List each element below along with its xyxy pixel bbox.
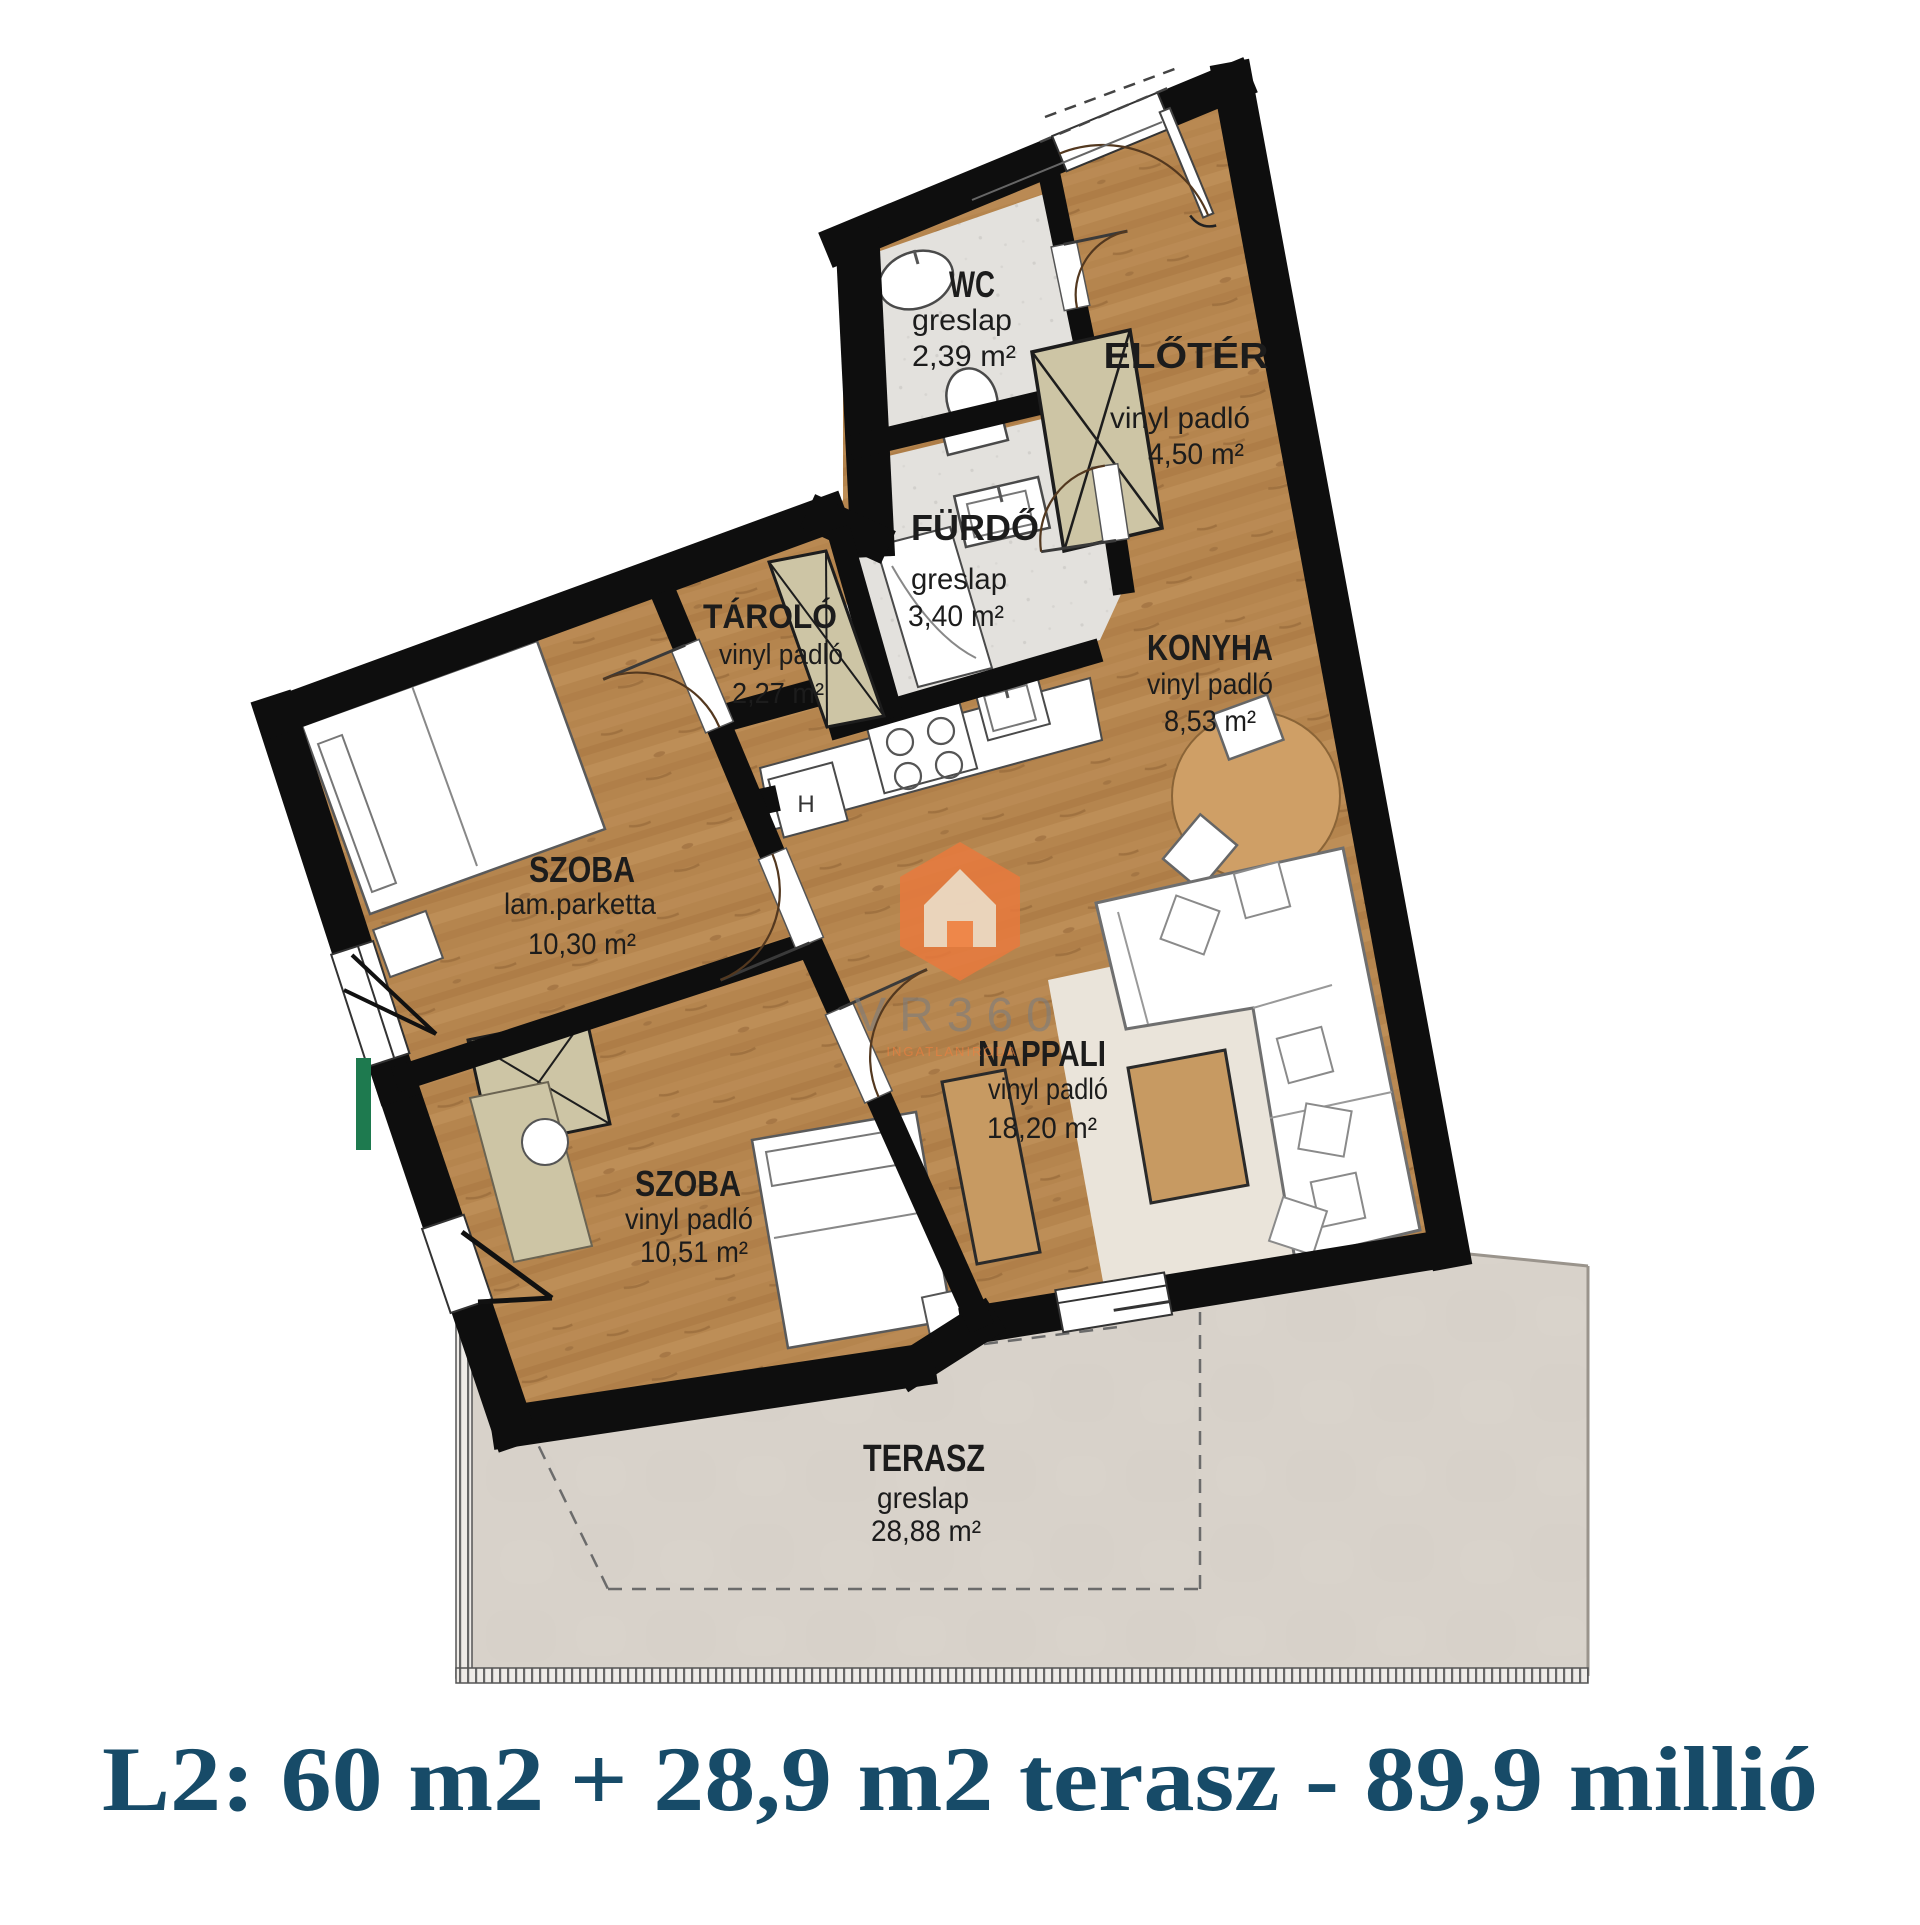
svg-text:VR360: VR360 [854,989,1066,1042]
svg-text:4,50 m²: 4,50 m² [1148,438,1244,471]
svg-text:28,88 m²: 28,88 m² [871,1515,981,1548]
svg-text:KONYHA: KONYHA [1147,627,1273,668]
svg-text:TERASZ: TERASZ [863,1438,985,1480]
svg-text:lam.parketta: lam.parketta [504,888,656,921]
svg-text:vinyl padló: vinyl padló [719,639,843,671]
svg-text:H: H [797,791,814,818]
svg-text:3,40 m²: 3,40 m² [908,600,1004,633]
svg-text:SZOBA: SZOBA [635,1163,741,1204]
svg-text:vinyl padló: vinyl padló [625,1203,753,1236]
svg-text:TÁROLÓ: TÁROLÓ [703,598,837,636]
svg-text:10,30 m²: 10,30 m² [528,928,636,961]
svg-text:L2: 60 m2 + 28,9 m2 terasz - 8: L2: 60 m2 + 28,9 m2 terasz - 89,9 millió [102,1728,1818,1830]
svg-text:vinyl padló: vinyl padló [988,1073,1108,1106]
svg-text:greslap: greslap [911,563,1007,596]
svg-text:2,27 m²: 2,27 m² [732,678,824,710]
svg-text:18,20 m²: 18,20 m² [987,1112,1097,1145]
svg-text:greslap: greslap [912,304,1012,337]
svg-text:WC: WC [949,264,995,305]
svg-text:8,53 m²: 8,53 m² [1164,705,1256,738]
svg-text:INGATLANIRODA: INGATLANIRODA [886,1044,1017,1059]
svg-text:ELŐTÉR: ELŐTÉR [1104,334,1269,376]
svg-text:2,39 m²: 2,39 m² [912,340,1016,373]
svg-text:FÜRDŐ: FÜRDŐ [911,506,1039,548]
svg-text:10,51 m²: 10,51 m² [640,1236,748,1269]
svg-text:greslap: greslap [877,1482,969,1515]
svg-text:SZOBA: SZOBA [529,849,635,890]
svg-text:vinyl padló: vinyl padló [1110,402,1250,435]
svg-text:vinyl padló: vinyl padló [1147,668,1273,701]
